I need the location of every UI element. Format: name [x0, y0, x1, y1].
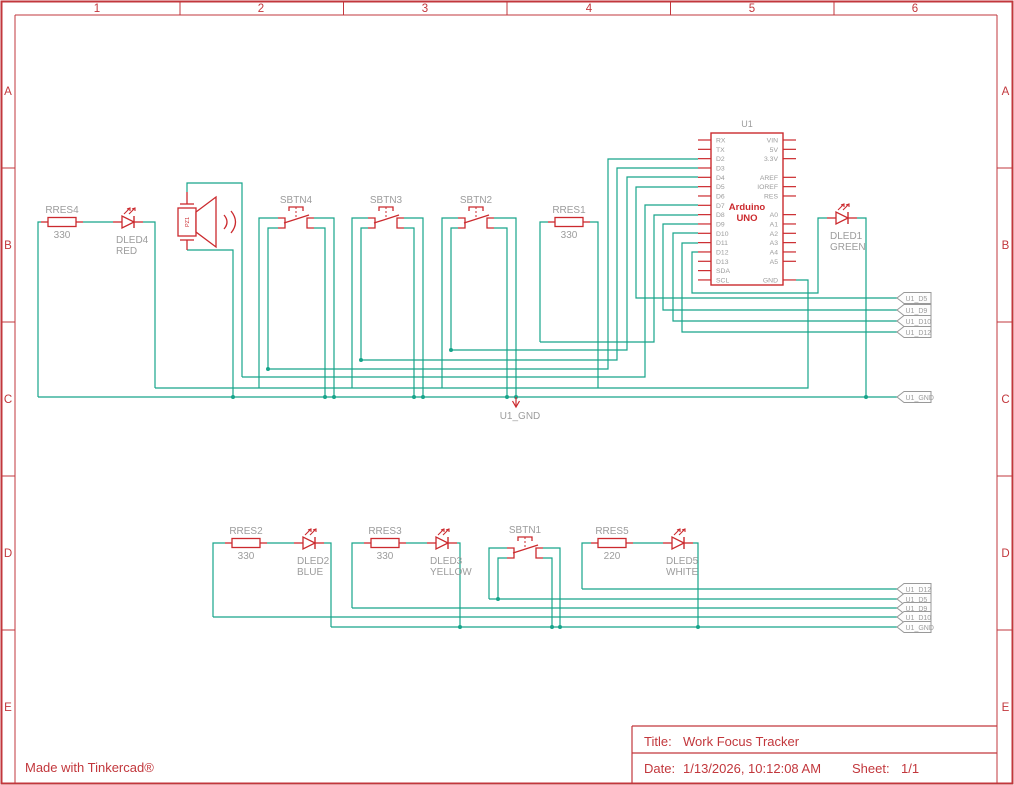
- gnd-net-marker: U1_GND: [500, 397, 541, 422]
- sheet-label: Sheet:: [852, 761, 890, 776]
- junction-dot: [458, 625, 462, 629]
- junction-dots: [231, 348, 868, 629]
- pin-label: A4: [770, 249, 779, 256]
- net-flag-U1_D9[interactable]: U1_D9: [897, 305, 931, 316]
- column-label: 3: [422, 3, 428, 15]
- junction-dot: [449, 348, 453, 352]
- resistor-body[interactable]: [232, 539, 260, 548]
- pushbutton-SBTN4[interactable]: SBTN4: [278, 195, 314, 228]
- resistor-name: RRES1: [552, 205, 586, 216]
- led-name: DLED3: [430, 556, 463, 567]
- junction-dot: [332, 395, 336, 399]
- wire[interactable]: [352, 218, 368, 388]
- led-name: DLED2: [297, 556, 330, 567]
- pin-label: D9: [716, 221, 725, 228]
- pin-label: D11: [716, 240, 728, 247]
- pin-label: SCL: [716, 277, 729, 284]
- column-label: 4: [586, 3, 593, 15]
- led-color: RED: [116, 246, 137, 257]
- pin-label: IOREF: [757, 184, 778, 191]
- wire[interactable]: [314, 218, 334, 397]
- resistor-name: RRES5: [595, 526, 629, 537]
- led-color: GREEN: [830, 242, 866, 253]
- pushbutton-SBTN3[interactable]: SBTN3: [368, 195, 404, 228]
- net-flag-U1_D12[interactable]: U1_D12: [897, 327, 931, 338]
- net-flag-U1_D10[interactable]: U1_D10: [897, 316, 931, 327]
- button-terminal: [458, 223, 465, 228]
- sound-wave-icon: [231, 211, 236, 233]
- button-terminal: [507, 553, 514, 558]
- net-flag-label: U1_D12: [906, 330, 932, 337]
- net-flag-label: U1_GND: [906, 625, 934, 632]
- button-terminal: [278, 218, 285, 223]
- button-terminal: [397, 223, 404, 228]
- row-label: C: [4, 394, 12, 406]
- pushbutton-SBTN1[interactable]: SBTN1: [507, 525, 543, 558]
- junction-dot: [266, 367, 270, 371]
- row-label: B: [4, 240, 12, 252]
- resistor-RRES1[interactable]: RRES1330: [548, 205, 590, 241]
- arduino-U1[interactable]: U1RXTXD2D3D4D5D6D7D8D9D10D11D12D13SDASCL…: [698, 119, 796, 285]
- resistor-RRES4[interactable]: RRES4330: [41, 205, 83, 241]
- wire[interactable]: [494, 228, 507, 397]
- row-label: D: [4, 548, 12, 560]
- wire[interactable]: [404, 228, 414, 397]
- pin-label: D4: [716, 175, 725, 182]
- button-terminal: [397, 218, 404, 223]
- row-label: C: [1001, 394, 1009, 406]
- resistor-name: RRES3: [368, 526, 402, 537]
- row-label: B: [1002, 240, 1010, 252]
- pin-label: RX: [716, 138, 726, 145]
- resistor-value: 330: [238, 551, 255, 562]
- resistor-RRES3[interactable]: RRES3330: [364, 526, 406, 562]
- column-label: 6: [912, 3, 918, 15]
- pin-label: D12: [716, 249, 729, 256]
- button-terminal: [487, 218, 494, 223]
- resistor-value: 330: [377, 551, 394, 562]
- led-name: DLED5: [666, 556, 699, 567]
- pin-label: A0: [770, 212, 779, 219]
- button-terminal: [507, 548, 514, 553]
- led-color: WHITE: [666, 567, 699, 578]
- pin-label: A2: [770, 231, 779, 238]
- wire[interactable]: [582, 543, 591, 589]
- net-flag-label: U1_GND: [906, 395, 934, 402]
- resistor-RRES5[interactable]: RRES5220: [591, 526, 633, 562]
- title-label: Title:: [644, 734, 672, 749]
- net-flag-U1_D10[interactable]: U1_D10: [897, 612, 931, 623]
- resistor-name: RRES4: [45, 205, 79, 216]
- pin-label: D7: [716, 203, 725, 210]
- net-flag-label: U1_D12: [906, 587, 932, 594]
- pin-label: D5: [716, 184, 725, 191]
- pin-label: GND: [763, 277, 778, 284]
- resistor-body[interactable]: [371, 539, 399, 548]
- arduino-ref: U1: [741, 119, 753, 129]
- button-terminal: [487, 223, 494, 228]
- pin-label: D6: [716, 193, 725, 200]
- junction-dot: [231, 395, 235, 399]
- resistor-body[interactable]: [555, 218, 583, 227]
- led-triangle: [436, 537, 448, 549]
- wire[interactable]: [498, 558, 507, 599]
- led-DLED2[interactable]: DLED2BLUE: [294, 529, 330, 578]
- row-label: D: [1001, 548, 1009, 560]
- tinkercad-credit: Made with Tinkercad®: [25, 760, 154, 775]
- led-DLED1[interactable]: DLED1GREEN: [827, 204, 866, 253]
- wire[interactable]: [213, 543, 225, 617]
- row-label: A: [1002, 86, 1010, 98]
- junction-dot: [323, 395, 327, 399]
- button-terminal: [368, 218, 375, 223]
- led-name: DLED1: [830, 231, 863, 242]
- button-terminal: [458, 218, 465, 223]
- net-flag-label: U1_D9: [906, 308, 928, 315]
- junction-dot: [359, 358, 363, 362]
- wire[interactable]: [590, 222, 598, 388]
- wire[interactable]: [268, 228, 278, 369]
- pin-label: D10: [716, 231, 729, 238]
- pin-label: D3: [716, 165, 725, 172]
- net-flag-U1_D5[interactable]: U1_D5: [897, 293, 931, 304]
- button-terminal: [307, 218, 314, 223]
- resistor-body[interactable]: [598, 539, 626, 548]
- sheet-value: 1/1: [901, 761, 919, 776]
- button-terminal: [278, 223, 285, 228]
- button-terminal: [536, 548, 543, 553]
- junction-dot: [421, 395, 425, 399]
- led-triangle: [672, 537, 684, 549]
- led-triangle: [836, 212, 848, 224]
- arduino-name: UNO: [736, 213, 757, 224]
- led-name: DLED4: [116, 235, 149, 246]
- arduino-name: Arduino: [729, 202, 766, 213]
- row-label: A: [4, 86, 12, 98]
- led-DLED5[interactable]: DLED5WHITE: [663, 529, 699, 578]
- wire[interactable]: [361, 228, 368, 360]
- junction-dot: [864, 395, 868, 399]
- pin-label: A1: [770, 221, 779, 228]
- resistor-value: 220: [604, 551, 621, 562]
- button-terminal: [536, 553, 543, 558]
- net-flag-label: U1_D5: [906, 296, 928, 303]
- pin-label: AREF: [760, 175, 778, 182]
- piezo-horn: [196, 197, 216, 247]
- wire[interactable]: [268, 159, 698, 369]
- schematic-canvas: 123456AABBCCDDEERRES4330RRES1330RRES2330…: [0, 0, 1014, 785]
- net-flag-U1_GND[interactable]: U1_GND: [897, 392, 934, 403]
- piezo-PZ1[interactable]: PZ1: [178, 192, 236, 250]
- schematic-date: 1/13/2026, 10:12:08 AM: [683, 761, 821, 776]
- row-label: E: [1002, 702, 1010, 714]
- button-terminal: [368, 223, 375, 228]
- net-flag-U1_GND[interactable]: U1_GND: [897, 622, 934, 633]
- pin-label: 3.3V: [764, 156, 778, 163]
- pin-label: D13: [716, 259, 729, 266]
- pin-label: TX: [716, 147, 725, 154]
- column-label: 1: [94, 3, 100, 15]
- led-DLED3[interactable]: DLED3YELLOW: [427, 529, 472, 578]
- junction-dot: [496, 597, 500, 601]
- column-label: 2: [258, 3, 264, 15]
- pin-label: D2: [716, 156, 725, 163]
- pin-label: SDA: [716, 268, 730, 275]
- led-color: YELLOW: [430, 567, 472, 578]
- sound-wave-icon: [224, 215, 227, 229]
- junction-dot: [558, 625, 562, 629]
- junction-dot: [696, 625, 700, 629]
- resistor-body[interactable]: [48, 218, 76, 227]
- button-name: SBTN3: [370, 195, 403, 206]
- column-label: 5: [749, 3, 755, 15]
- wire[interactable]: [451, 228, 458, 350]
- wire[interactable]: [187, 250, 233, 397]
- led-color: BLUE: [297, 567, 323, 578]
- button-terminal: [307, 223, 314, 228]
- led-triangle: [122, 216, 134, 228]
- wire[interactable]: [540, 222, 548, 342]
- resistor-value: 330: [54, 230, 71, 241]
- net-flag-U1_D12[interactable]: U1_D12: [897, 584, 931, 595]
- resistor-RRES2[interactable]: RRES2330: [225, 526, 267, 562]
- wire[interactable]: [38, 222, 41, 397]
- piezo-name: PZ1: [185, 217, 191, 227]
- pushbutton-SBTN2[interactable]: SBTN2: [458, 195, 494, 228]
- resistor-value: 330: [561, 230, 578, 241]
- gnd-net-label: U1_GND: [500, 411, 541, 422]
- junction-dot: [505, 395, 509, 399]
- schematic-page: { "colors":{"frame_red":"#c2373c","comp_…: [0, 0, 1014, 785]
- resistor-name: RRES2: [229, 526, 263, 537]
- pin-label: RES: [764, 193, 778, 200]
- net-flag-label: U1_D10: [906, 319, 932, 326]
- junction-dot: [412, 395, 416, 399]
- pin-label: A3: [770, 240, 779, 247]
- wire[interactable]: [494, 218, 516, 397]
- wire[interactable]: [442, 218, 458, 388]
- led-triangle: [303, 537, 315, 549]
- wire[interactable]: [361, 168, 698, 360]
- button-name: SBTN1: [509, 525, 542, 536]
- net-flag-label: U1_D10: [906, 615, 932, 622]
- wire[interactable]: [143, 222, 155, 388]
- pin-label: 5V: [770, 147, 779, 154]
- wire[interactable]: [155, 280, 808, 388]
- junction-dot: [550, 625, 554, 629]
- wire[interactable]: [242, 205, 698, 377]
- wire[interactable]: [352, 543, 364, 608]
- button-name: SBTN4: [280, 195, 313, 206]
- date-label: Date:: [644, 761, 675, 776]
- wire[interactable]: [314, 228, 325, 397]
- pin-label: A5: [770, 259, 779, 266]
- schematic-title: Work Focus Tracker: [683, 734, 799, 749]
- led-DLED4[interactable]: DLED4RED: [113, 208, 149, 257]
- row-label: E: [4, 702, 12, 714]
- pin-label: VIN: [767, 138, 778, 145]
- pin-label: D8: [716, 212, 725, 219]
- button-name: SBTN2: [460, 195, 493, 206]
